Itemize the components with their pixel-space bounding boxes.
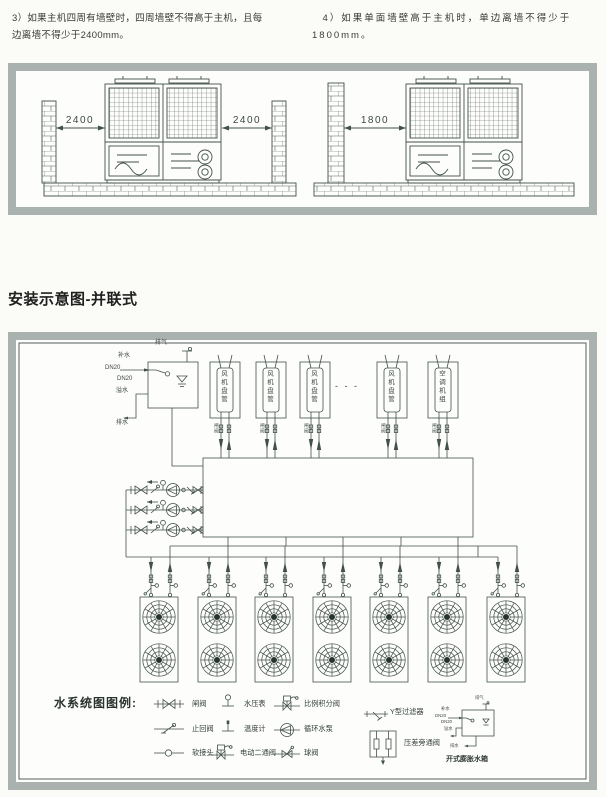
y-strainer-icon <box>364 711 388 721</box>
pump-group <box>126 480 203 557</box>
open-expansion-tank-icon <box>448 702 494 748</box>
continuation-dots: - - - <box>335 382 359 391</box>
svg-text:2400: 2400 <box>66 115 94 126</box>
legend-label-check-valve: 止回阀 <box>192 725 214 732</box>
piping-schematic-drawing <box>16 340 589 782</box>
pressure-differential-bypass-valve-icon <box>370 731 396 765</box>
legend-label-thermometer: 温度计 <box>244 725 266 732</box>
brick-wall-tall <box>328 83 344 183</box>
note-item-3: 3）如果主机四周有墙壁时，四周墙壁不得高于主机，且每边离墙不得少于2400mm。 <box>12 11 270 44</box>
legend-label-flexible-joint: 软接头 <box>192 749 214 756</box>
header-manifold <box>203 458 473 537</box>
mini-tank-dn20-bottom-label: DN20 <box>441 720 452 724</box>
branch-valve-label: 闸阀 <box>212 423 217 434</box>
note-item-4: 4）如果单面墙壁高于主机时，单边离墙不得少于1800mm。 <box>312 11 599 44</box>
legend-label-pressure-gauge: 水压表 <box>244 700 266 707</box>
mini-tank-drain-label: 排水 <box>450 744 459 748</box>
fan-coil-label-2: 风机盘管 <box>265 370 272 412</box>
legend-label-ball-valve: 球阀 <box>304 749 318 756</box>
mini-tank-overflow-label: 溢水 <box>444 727 453 731</box>
chiller-unit-front-view <box>406 76 522 183</box>
dimension-1800: 1800 <box>344 115 406 131</box>
tank-makeup-label: 补水 <box>118 353 130 359</box>
tank-drain-label: 排水 <box>116 420 128 426</box>
clearance-figure-drawing: 2400 2400 1800 <box>16 71 589 207</box>
fan-coil-label-1: 风机盘管 <box>219 370 226 412</box>
fan-coil-label-4: 风机盘管 <box>386 370 393 412</box>
expansion-tank <box>120 347 203 466</box>
legend-label-gate-valve: 闸阀 <box>192 700 206 707</box>
pressure-gauge-icon <box>222 695 234 706</box>
svg-text:1800: 1800 <box>361 115 389 126</box>
tank-dn20-top-label: DN20 <box>105 365 120 371</box>
dimension-2400-left: 2400 <box>56 115 105 131</box>
fan-coil-label-3: 风机盘管 <box>309 370 316 412</box>
check-valve-icon <box>154 723 184 733</box>
legend-label-electric-two-way-valve: 电动二通阀 <box>240 749 276 756</box>
brick-wall-right <box>272 101 286 183</box>
chiller-unit-front-view <box>105 76 221 183</box>
legend-label-circulation-pump: 循环水泵 <box>304 725 333 732</box>
flexible-joint-icon <box>154 750 184 756</box>
ground-base <box>44 183 296 196</box>
figure-four-walls: 2400 2400 <box>42 76 296 196</box>
tank-dn20-bottom-label: DN20 <box>117 376 132 382</box>
tank-connection-pipe <box>172 408 203 466</box>
chiller-module-1 <box>140 546 178 682</box>
legend-label-y-strainer: Y型过滤器 <box>390 708 424 715</box>
legend-label-bypass-valve: 压差旁通阀 <box>404 739 440 746</box>
proportional-integral-valve-icon <box>274 696 300 710</box>
svg-text:2400: 2400 <box>233 115 261 126</box>
ground-base <box>314 183 574 196</box>
mini-tank-makeup-label: 补水 <box>441 707 450 711</box>
ball-valve-icon <box>274 746 300 757</box>
chiller-module-4 <box>313 546 351 682</box>
piping-schematic-box: 排气 补水 DN20 DN20 溢水 排水 风机盘管 风机盘管 风机盘管 风机盘… <box>8 332 597 790</box>
circulation-pump-icon <box>274 724 300 737</box>
brick-wall-left <box>42 101 56 183</box>
ahu-label: 空调机组 <box>437 370 444 412</box>
mini-tank-vent-label: 排气 <box>475 696 484 700</box>
branch-valve-label: 闸阀 <box>430 423 435 434</box>
section-heading: 安装示意图-并联式 <box>8 288 138 309</box>
branch-valve-label: 闸阀 <box>379 423 384 434</box>
clearance-figure-box: 2400 2400 1800 <box>8 63 597 215</box>
legend-label-open-expansion-tank: 开式膨胀水箱 <box>446 756 488 763</box>
chiller-module-2 <box>198 546 236 682</box>
tank-overflow-label: 溢水 <box>116 388 128 394</box>
figure-single-wall: 1800 <box>314 76 574 196</box>
thermometer-icon <box>222 721 234 732</box>
chiller-module-7 <box>487 546 525 682</box>
tank-vent-label: 排气 <box>155 340 167 346</box>
mini-tank-dn20-top-label: DN20 <box>435 714 446 718</box>
chiller-module-3 <box>255 546 293 682</box>
branch-valve-label: 闸阀 <box>302 423 307 434</box>
schematic-inner-border <box>19 343 586 779</box>
chiller-module-6 <box>428 546 466 682</box>
gate-valve-icon <box>154 700 184 709</box>
legend-label-pi-valve: 比例积分阀 <box>304 700 340 707</box>
dimension-2400-right: 2400 <box>222 115 272 131</box>
legend-title: 水系统图图例: <box>54 697 137 709</box>
branch-valve-label: 闸阀 <box>258 423 263 434</box>
chiller-module-5 <box>370 546 408 682</box>
